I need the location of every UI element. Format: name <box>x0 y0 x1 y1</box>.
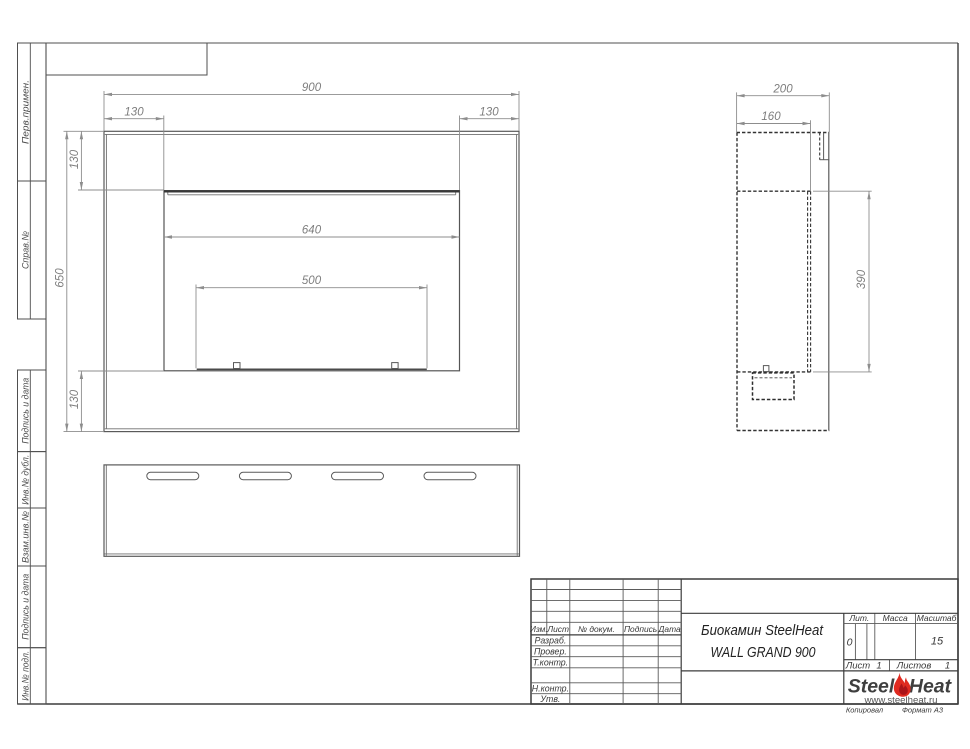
svg-text:900: 900 <box>302 82 322 94</box>
svg-text:Лист: Лист <box>546 624 569 634</box>
svg-text:Провер.: Провер. <box>534 646 567 656</box>
svg-text:№ докум.: № докум. <box>578 624 615 634</box>
svg-text:200: 200 <box>772 83 793 95</box>
svg-text:650: 650 <box>54 268 66 288</box>
svg-text:Изм.: Изм. <box>530 624 548 634</box>
svg-text:Перв.примен.: Перв.примен. <box>21 80 32 144</box>
svg-text:Н.контр.: Н.контр. <box>532 683 569 693</box>
svg-text:130: 130 <box>69 149 81 169</box>
svg-text:15: 15 <box>931 636 944 648</box>
svg-text:Т.контр.: Т.контр. <box>533 658 569 668</box>
svg-text:130: 130 <box>479 106 499 118</box>
svg-text:Взам.инв.№: Взам.инв.№ <box>21 511 32 563</box>
svg-text:Дата: Дата <box>658 624 681 634</box>
svg-text:390: 390 <box>856 269 868 289</box>
svg-text:1: 1 <box>945 661 950 672</box>
svg-text:Справ.№: Справ.№ <box>21 231 32 269</box>
svg-text:Листов: Листов <box>896 661 932 672</box>
svg-text:Лист: Лист <box>845 661 871 672</box>
svg-text:1: 1 <box>876 661 881 672</box>
svg-text:Подпись и дата: Подпись и дата <box>21 378 32 444</box>
svg-text:Подпись: Подпись <box>624 624 657 634</box>
svg-text:Подпись и дата: Подпись и дата <box>21 574 32 640</box>
svg-text:Биокамин SteelHeat: Биокамин SteelHeat <box>701 622 824 639</box>
svg-text:Лит.: Лит. <box>848 613 869 623</box>
svg-text:www.steelheat.ru: www.steelheat.ru <box>863 695 937 706</box>
svg-text:Утв.: Утв. <box>539 694 560 704</box>
svg-text:Масса: Масса <box>883 613 908 623</box>
svg-text:130: 130 <box>69 389 81 409</box>
svg-text:130: 130 <box>124 106 144 118</box>
svg-text:0: 0 <box>847 637 853 649</box>
svg-text:640: 640 <box>302 224 322 236</box>
svg-text:WALL GRAND 900: WALL GRAND 900 <box>711 644 816 661</box>
svg-text:Инв.№ подл.: Инв.№ подл. <box>21 651 32 701</box>
svg-text:Копировал: Копировал <box>846 706 884 715</box>
svg-text:Масштаб: Масштаб <box>917 613 958 623</box>
svg-text:500: 500 <box>302 275 322 287</box>
svg-text:Разраб.: Разраб. <box>534 636 566 646</box>
svg-text:160: 160 <box>761 111 781 123</box>
svg-text:Инв.№ дубл.: Инв.№ дубл. <box>21 455 32 505</box>
svg-text:Формат А3: Формат А3 <box>902 706 944 715</box>
